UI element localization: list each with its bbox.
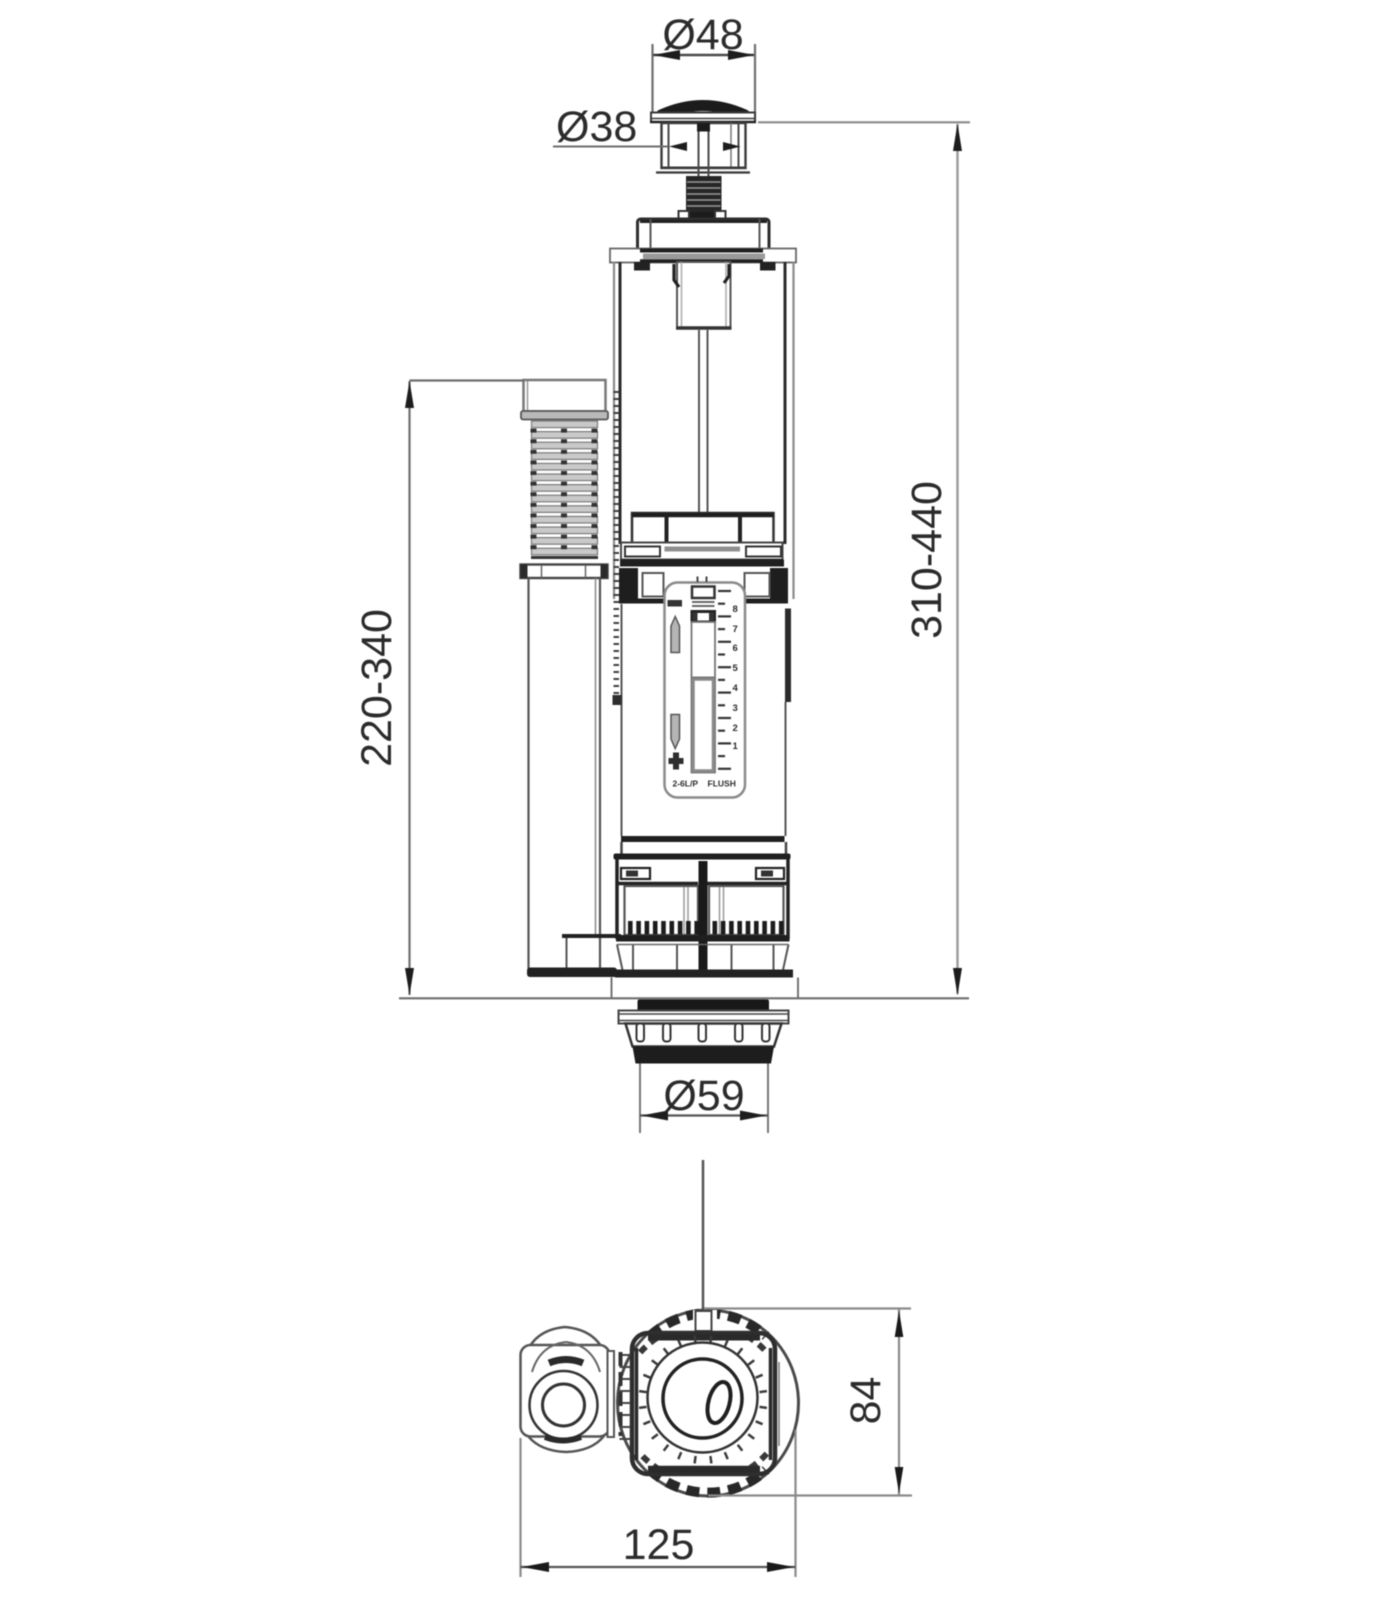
svg-text:Ø38: Ø38 [556,103,637,151]
svg-text:8: 8 [733,604,738,615]
svg-text:84: 84 [842,1377,890,1425]
svg-text:4: 4 [733,683,739,694]
svg-text:Ø48: Ø48 [662,11,743,59]
svg-text:2-6L/P: 2-6L/P [673,779,699,789]
svg-text:3: 3 [733,703,738,714]
svg-text:Ø59: Ø59 [663,1072,744,1120]
svg-text:1: 1 [733,741,739,752]
svg-text:6: 6 [733,643,738,654]
svg-text:2: 2 [733,723,738,734]
svg-text:125: 125 [623,1521,695,1569]
svg-text:220-340: 220-340 [353,609,401,767]
svg-text:FLUSH: FLUSH [708,779,736,789]
svg-text:310-440: 310-440 [903,481,951,639]
svg-text:7: 7 [733,624,738,635]
svg-text:5: 5 [733,663,739,674]
